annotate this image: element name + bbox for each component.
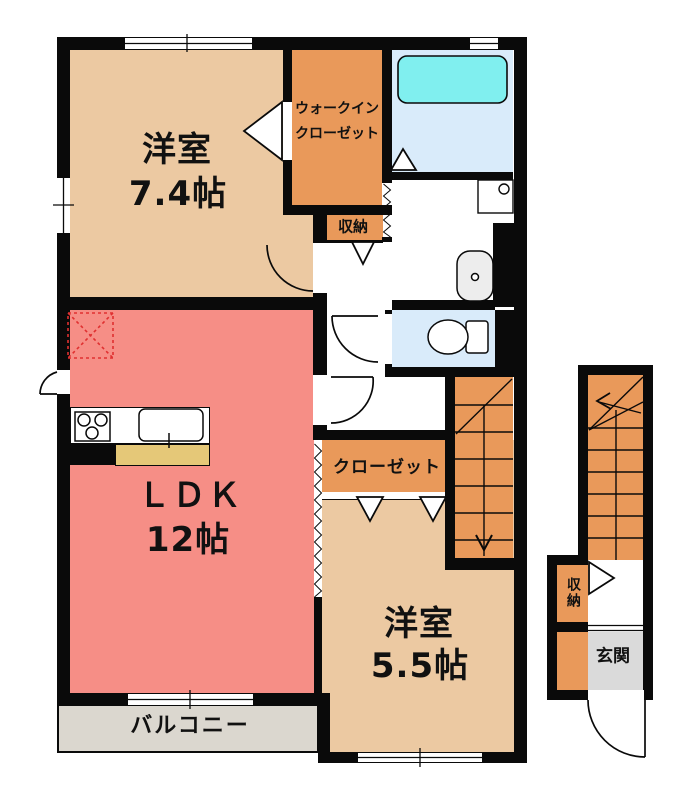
- duct-space: [493, 223, 526, 307]
- label-bedroom-main-name: 洋室: [142, 131, 212, 169]
- wall-kitchen-stub: [70, 444, 115, 465]
- door-ldk-left-arc: [40, 372, 57, 394]
- wall-wic-bottom: [283, 205, 392, 215]
- label-ldk-name: ＬＤＫ: [138, 478, 243, 515]
- opening-washroom: [383, 242, 392, 302]
- closet-door-track: [322, 492, 446, 500]
- wall-ldk-bedroom2: [314, 597, 322, 693]
- wall-closet-top: [313, 430, 455, 440]
- kitchen-counter: [70, 407, 210, 444]
- label-wic-line2: クローゼット: [295, 127, 379, 143]
- label-storage-entry: 収納: [564, 577, 580, 609]
- room-bathroom: [392, 50, 513, 172]
- door-entry-arc: [588, 700, 645, 757]
- entry-wall-upper-left: [578, 365, 588, 560]
- door-wic-gap: [283, 102, 292, 160]
- wall-wic-right: [382, 37, 392, 183]
- wall-stairs-left: [445, 367, 455, 570]
- window-bedroom-left: [57, 178, 70, 233]
- wall-below-toilet: [385, 367, 526, 377]
- window-bedroom2-bottom: [358, 753, 482, 762]
- door-entry-gap: [588, 690, 644, 700]
- entry-wall-right: [643, 365, 653, 700]
- window-bath-top: [470, 38, 498, 49]
- door-toilet-gap: [385, 314, 392, 364]
- label-closet: クローゼット: [333, 458, 441, 477]
- wall-balcony-right: [318, 693, 330, 753]
- wall-right: [514, 37, 527, 763]
- label-bedroom-main-size: 7.4帖: [129, 175, 227, 213]
- floor-plan: 洋室 7.4帖 ウォークイン クローゼット 収納 ＬＤＫ 12帖 クローゼット …: [0, 0, 680, 800]
- wall-storage-bottom: [323, 240, 383, 243]
- label-entrance: 玄関: [596, 647, 630, 666]
- door-ldk-left-gap: [57, 370, 70, 394]
- entry-wall-storage-bottom: [547, 622, 588, 632]
- label-ldk-size: 12帖: [146, 521, 230, 559]
- room-toilet: [392, 310, 495, 367]
- label-storage-main: 収納: [338, 219, 368, 236]
- label-bedroom-second-name: 洋室: [384, 605, 454, 643]
- wall-wash-toilet: [392, 300, 495, 310]
- door-ldk-gap: [313, 375, 327, 425]
- wall-stairs-bottom: [445, 558, 526, 570]
- label-wic-line1: ウォークイン: [295, 102, 379, 118]
- staircase-entry: [588, 375, 643, 560]
- wall-toilet-right: [495, 310, 514, 367]
- entry-step-strip: [557, 632, 588, 690]
- entrance-threshold: [588, 626, 643, 631]
- label-balcony: バルコニー: [130, 715, 250, 740]
- entry-wall-top: [578, 365, 653, 375]
- staircase-main: [455, 377, 513, 558]
- label-bedroom-second-size: 5.5帖: [371, 647, 469, 685]
- window-bedroom-top: [125, 38, 252, 49]
- kitchen-counter-low: [115, 444, 210, 466]
- door-bedroom-gap: [313, 243, 327, 293]
- wall-bedroom-ldk: [57, 297, 313, 310]
- window-ldk-bottom: [128, 694, 253, 705]
- entry-landing: [588, 560, 643, 624]
- wall-bath-wash: [392, 172, 513, 180]
- accordion-strip: [314, 443, 322, 597]
